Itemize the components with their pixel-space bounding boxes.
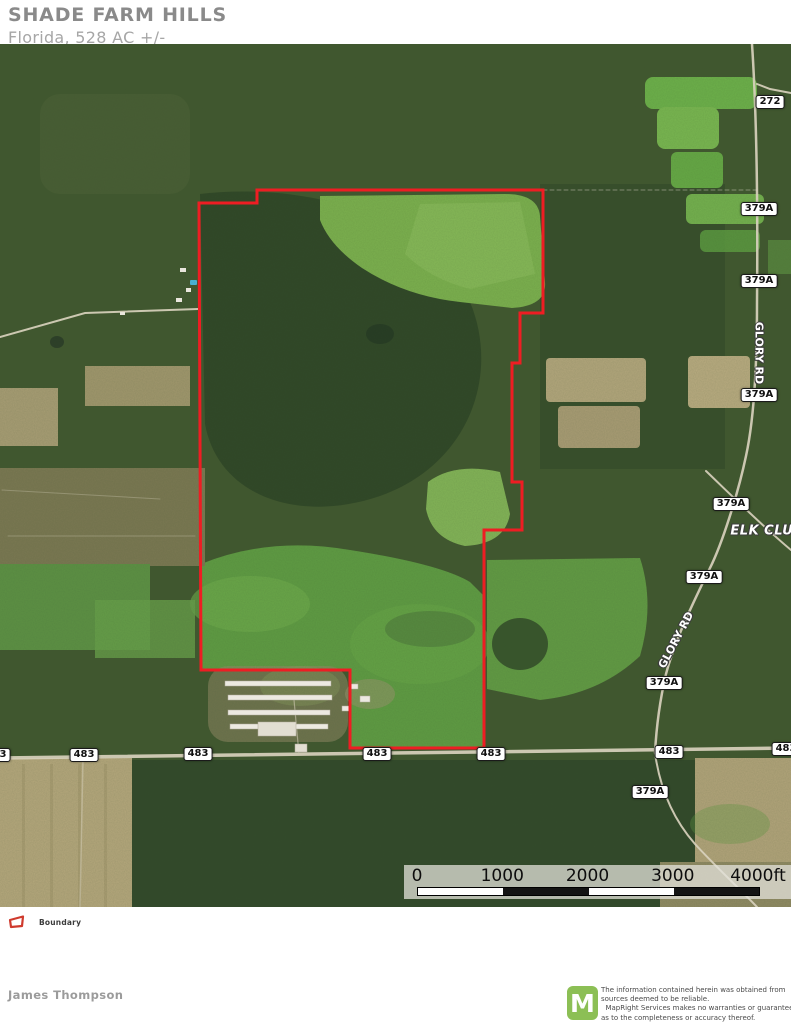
road-shield: 379A — [741, 274, 778, 288]
road-shield: 483 — [477, 747, 506, 761]
legend: Boundary — [8, 915, 81, 929]
satellite-map: 272379A379A379A379A379A379A379A483483483… — [0, 44, 791, 907]
road-shield: 483 — [70, 748, 99, 762]
legend-boundary-icon — [8, 915, 26, 929]
scale-tick-label: 1000 — [481, 866, 524, 886]
road-shield: 379A — [686, 570, 723, 584]
scale-bar: 01000200030004000ft — [404, 865, 791, 899]
road-shield: 379A — [741, 202, 778, 216]
mapright-logo-letter: M — [570, 989, 595, 1018]
scale-segment — [503, 888, 588, 895]
road-shield: 483 — [772, 742, 791, 756]
road-shield: 379A — [646, 676, 683, 690]
road-shield: 483 — [363, 747, 392, 761]
road-shield: 379A — [713, 497, 750, 511]
mapright-logo: M — [567, 986, 598, 1020]
legend-boundary-label: Boundary — [39, 918, 81, 927]
scale-segment — [674, 888, 759, 895]
disclaimer-text: The information contained herein was obt… — [601, 986, 791, 1023]
road-shield: 483 — [655, 745, 684, 759]
scale-tick-label: 0 — [412, 866, 423, 886]
road-shield: 379A — [741, 388, 778, 402]
road-shield: 483 — [0, 748, 10, 762]
satellite-imagery — [0, 44, 791, 907]
road-shield: 483 — [184, 747, 213, 761]
map-export-page: SHADE FARM HILLS Florida, 528 AC +/- — [0, 0, 791, 1024]
road-shield: 379A — [632, 785, 669, 799]
map-title: SHADE FARM HILLS — [8, 4, 227, 26]
scale-bar-segments — [417, 887, 760, 896]
scale-tick-label: 4000ft — [730, 866, 786, 886]
author-name: James Thompson — [8, 988, 123, 1002]
road-name-label: GLORY RD — [753, 322, 766, 384]
road-name-label: ELK CLUB L — [730, 524, 791, 539]
scale-tick-label: 2000 — [566, 866, 609, 886]
map-header: SHADE FARM HILLS Florida, 528 AC +/- — [8, 4, 227, 47]
road-shield: 272 — [756, 95, 785, 109]
scale-segment — [589, 888, 674, 895]
scale-tick-label: 3000 — [651, 866, 694, 886]
scale-segment — [418, 888, 503, 895]
